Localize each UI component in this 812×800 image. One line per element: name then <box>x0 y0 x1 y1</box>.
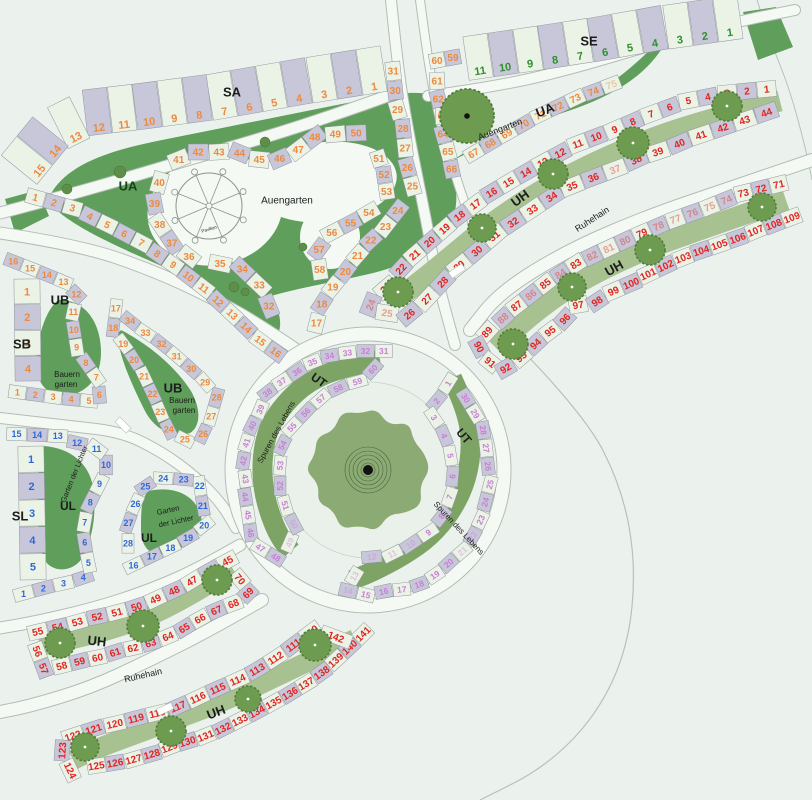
plot-number: 97 <box>572 300 585 313</box>
plot-number: 45 <box>254 155 266 166</box>
plot-number: 58 <box>314 265 326 276</box>
plot-number: 21 <box>352 251 364 262</box>
tree-icon <box>558 273 586 301</box>
plot-number: 48 <box>309 132 321 143</box>
plot-number: 9 <box>74 343 79 353</box>
plot-number: 15 <box>25 263 35 273</box>
label-ul: UL <box>141 531 157 545</box>
plot-number: 46 <box>245 527 256 538</box>
plot-number: 24 <box>392 206 404 217</box>
plot-number: 23 <box>380 222 392 233</box>
plot-number: 25 <box>381 308 394 321</box>
plot-number: 56 <box>326 228 338 239</box>
plot-number: 6 <box>97 390 102 400</box>
plot-number: 19 <box>327 282 339 293</box>
plot-number: 31 <box>172 351 182 361</box>
plot-number: 15 <box>12 429 22 439</box>
plot-number: 21 <box>139 372 149 382</box>
label-garten: garten <box>173 406 196 415</box>
plot-number: 53 <box>381 187 393 198</box>
plot-number: 12 <box>92 122 106 135</box>
plot-number: 25 <box>140 482 150 492</box>
plot-number: 44 <box>240 491 251 502</box>
plot-number: 32 <box>361 346 371 356</box>
plot-number: 13 <box>58 277 68 287</box>
tree-icon <box>235 686 261 712</box>
plot-number: 14 <box>32 430 42 440</box>
plot-number: 43 <box>213 147 225 158</box>
plot-number: 5 <box>87 396 92 406</box>
plot-number: 10 <box>498 61 512 75</box>
center-point <box>363 465 373 475</box>
plot-number: 34 <box>125 316 135 326</box>
tree-icon <box>45 628 75 658</box>
plot-number: 32 <box>156 339 166 349</box>
label-bauern: Bauern <box>54 370 80 379</box>
plot-number: 42 <box>238 455 249 466</box>
plot-number: 2 <box>41 583 46 593</box>
bush-icon <box>229 282 239 292</box>
plot-number: 28 <box>397 124 409 135</box>
plot-number: 42 <box>193 148 205 159</box>
plot-number: 51 <box>373 154 385 165</box>
plot-number: 66 <box>446 165 458 176</box>
plot-number: 26 <box>131 499 141 509</box>
plot-number: 59 <box>447 53 459 64</box>
plot-number: 3 <box>61 579 66 589</box>
plot-number: 18 <box>316 299 328 310</box>
tree-icon <box>383 277 413 307</box>
plot-number: 4 <box>69 394 74 404</box>
plot-number: 30 <box>390 86 402 97</box>
label-uh: UH <box>87 633 107 650</box>
plot-number: 9 <box>97 479 102 489</box>
tree-icon <box>127 610 159 642</box>
plot-number: 61 <box>432 76 444 87</box>
plot-number: 6 <box>82 538 87 548</box>
label-ua: UA <box>119 179 138 194</box>
plot-number: 24 <box>158 473 168 483</box>
plot-number: 1 <box>24 286 30 298</box>
plot-number: 57 <box>313 245 325 256</box>
plot-number: 39 <box>149 199 161 210</box>
plot-number: 8 <box>83 358 88 368</box>
plot-number: 33 <box>342 347 353 358</box>
plot-number: 22 <box>148 389 158 399</box>
plot-number: 23 <box>155 407 165 417</box>
plot-number: 25 <box>180 435 190 445</box>
plot-number: 52 <box>379 170 391 181</box>
plot-number: 13 <box>53 431 63 441</box>
tree-icon <box>299 629 331 661</box>
plot-number: 11 <box>69 307 79 317</box>
bush-icon <box>241 288 249 296</box>
plot-number: 40 <box>154 178 166 189</box>
label-ub: UB <box>164 381 183 396</box>
plot-number: 25 <box>407 182 419 193</box>
plot-number: 12 <box>71 290 81 300</box>
tree-icon <box>498 329 528 359</box>
plot-number: 47 <box>293 145 305 156</box>
plot-number: 28 <box>212 393 222 403</box>
plot-number: 44 <box>234 148 246 159</box>
tree-icon <box>468 214 496 242</box>
label-garten: garten <box>55 380 78 389</box>
plot-number: 26 <box>198 429 208 439</box>
tree-icon <box>202 565 232 595</box>
plot-number: 55 <box>345 218 357 229</box>
plot-number: 1 <box>15 387 20 397</box>
plot-number: 50 <box>351 129 363 140</box>
plot-number: 10 <box>142 116 156 130</box>
tree-icon <box>156 716 186 746</box>
label-auengarten: Auengarten <box>261 196 313 207</box>
plot-number: 20 <box>199 521 209 531</box>
plot-number: 11 <box>92 444 102 454</box>
plot-number: 33 <box>254 281 266 292</box>
plot-number: 23 <box>179 475 189 485</box>
plot-number: 20 <box>129 355 139 365</box>
tree-icon <box>617 127 649 159</box>
plot-number: 28 <box>477 425 488 436</box>
plot-number: 38 <box>154 220 166 231</box>
tree-icon <box>538 159 568 189</box>
plot-number: 30 <box>186 364 196 374</box>
plot-number: 53 <box>275 460 286 471</box>
plot-number: 18 <box>108 323 118 333</box>
plot-number: 34 <box>237 265 249 276</box>
plot-number: 10 <box>69 325 79 335</box>
plot-number: 31 <box>388 66 400 77</box>
plot-number: 36 <box>183 252 195 263</box>
plot-number: 16 <box>128 560 138 570</box>
plot-number: 7 <box>94 373 99 383</box>
label-sl: SL <box>12 509 29 524</box>
label-se: SE <box>580 34 598 49</box>
plot-number: 1 <box>21 589 26 599</box>
label-sa: SA <box>223 85 242 100</box>
plot-number: 17 <box>397 584 408 595</box>
plot-number: 4 <box>81 573 86 583</box>
plot-number: 37 <box>166 238 178 249</box>
plot-number: 11 <box>118 119 131 132</box>
plot-number: 27 <box>481 443 492 454</box>
plot-number: 14 <box>42 270 52 280</box>
plot-number: 17 <box>147 552 157 562</box>
plot-number: 43 <box>240 473 251 484</box>
plot-number: 35 <box>214 259 226 270</box>
bush-icon <box>260 137 270 147</box>
plot-number: 17 <box>311 319 323 330</box>
plot-number: 27 <box>206 411 216 421</box>
plot-number: 10 <box>101 460 111 470</box>
plot-number: 27 <box>123 518 133 528</box>
plot-number: 29 <box>392 105 404 116</box>
plot-number: 32 <box>263 302 275 313</box>
label-sb: SB <box>13 337 31 352</box>
plot-number: 4 <box>29 535 36 547</box>
bush-icon <box>114 166 126 178</box>
tree-icon <box>635 235 665 265</box>
plot-number: 41 <box>173 155 185 166</box>
bush-icon <box>299 243 307 251</box>
plot-number: 21 <box>198 501 208 511</box>
plot-number: 2 <box>24 312 30 324</box>
plot-number: 16 <box>8 257 18 267</box>
plot-number: 1 <box>28 454 34 466</box>
plot-number: 45 <box>243 509 254 520</box>
plot-number: 4 <box>25 363 32 375</box>
plot-number: 27 <box>400 143 412 154</box>
plot-number: 52 <box>275 481 285 491</box>
plot-number: 19 <box>183 533 193 543</box>
plot-number: 26 <box>483 461 494 472</box>
plot-number: 11 <box>474 65 487 79</box>
plot-number: 49 <box>330 130 342 141</box>
tree-icon <box>748 193 776 221</box>
plot-number: 17 <box>111 304 121 314</box>
tree-icon <box>712 91 742 121</box>
plot-number: 3 <box>29 508 35 520</box>
plot-number: 26 <box>402 163 414 174</box>
plot-number: 24 <box>164 425 174 435</box>
plot-number: 123 <box>57 741 69 759</box>
plot-number: 34 <box>324 350 335 361</box>
label-ub: UB <box>51 293 70 308</box>
tree-icon <box>71 733 99 761</box>
plot-number: 31 <box>379 346 389 356</box>
plot-number: 22 <box>195 481 205 491</box>
plot-number: 7 <box>82 517 87 527</box>
plot-number: 60 <box>431 56 443 67</box>
plot-number: 3 <box>51 392 56 402</box>
site-map: 1234567891011121314151234567891011403938… <box>0 0 812 800</box>
plot-number: 33 <box>141 328 151 338</box>
plot-number: 22 <box>365 236 377 247</box>
cemetery-garden-map: 1234567891011121314151234567891011403938… <box>0 0 812 800</box>
plot-number: 19 <box>118 339 128 349</box>
bush-icon <box>62 184 72 194</box>
label-bauern: Bauern <box>169 396 195 405</box>
plot-number: 2 <box>33 390 38 400</box>
plot-number: 46 <box>274 154 286 165</box>
plot-number: 18 <box>165 543 175 553</box>
plot-number: 54 <box>363 208 375 219</box>
plot-number: 65 <box>442 147 454 158</box>
plot-number: 5 <box>86 558 91 568</box>
plot-number: 2 <box>28 481 34 493</box>
plot-number: 5 <box>30 562 36 574</box>
plot-number: 29 <box>200 378 210 388</box>
plot-number: 20 <box>340 267 352 278</box>
plot-number: 12 <box>366 551 377 562</box>
plot-number: 28 <box>123 539 133 549</box>
plot-number: 8 <box>88 498 93 508</box>
